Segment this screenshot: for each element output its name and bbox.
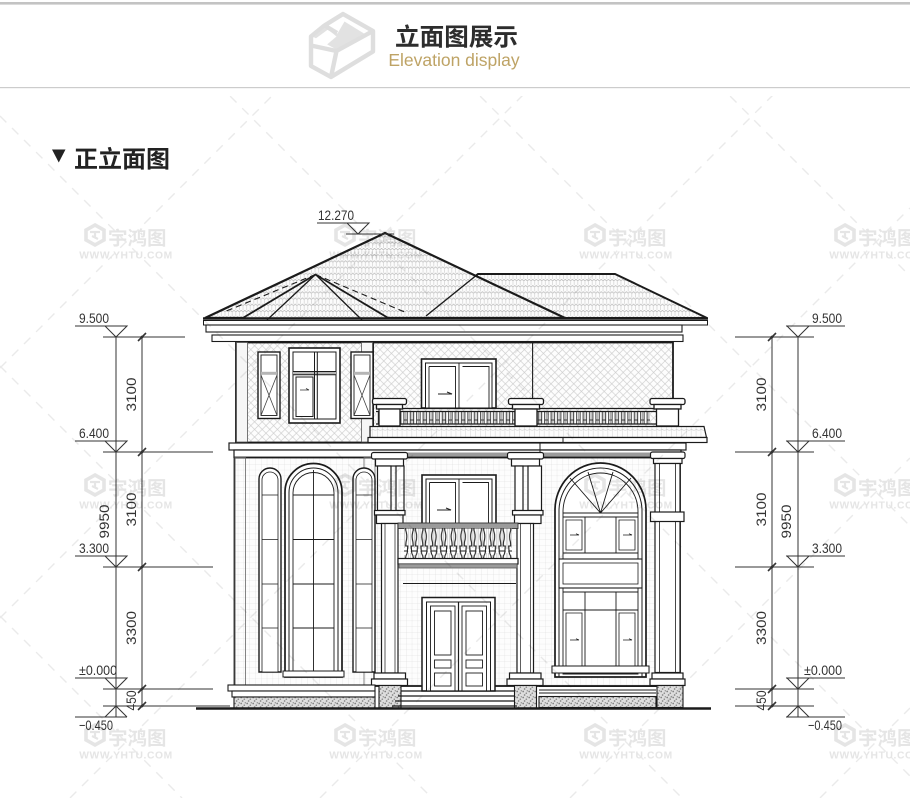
svg-text:WWW.YHTU.COM: WWW.YHTU.COM: [829, 251, 910, 262]
svg-text:WWW.YHTU.COM: WWW.YHTU.COM: [829, 501, 910, 512]
svg-text:3100: 3100: [753, 377, 769, 411]
svg-text:WWW.YHTU.COM: WWW.YHTU.COM: [579, 751, 673, 762]
svg-text:WWW.YHTU.COM: WWW.YHTU.COM: [579, 501, 673, 512]
svg-text:9950: 9950: [778, 504, 794, 538]
svg-text:±0.000: ±0.000: [79, 662, 117, 678]
svg-text:9.500: 9.500: [79, 310, 109, 326]
svg-text:9.500: 9.500: [812, 310, 842, 326]
svg-text:12.270: 12.270: [318, 207, 354, 223]
svg-text:3100: 3100: [123, 377, 139, 411]
svg-text:450: 450: [123, 690, 139, 710]
svg-text:3300: 3300: [123, 611, 139, 645]
svg-text:WWW.YHTU.COM: WWW.YHTU.COM: [579, 251, 673, 262]
svg-text:3.300: 3.300: [812, 540, 842, 556]
svg-text:WWW.YHTU.COM: WWW.YHTU.COM: [329, 501, 423, 512]
svg-text:WWW.YHTU.COM: WWW.YHTU.COM: [329, 251, 423, 262]
svg-text:450: 450: [753, 690, 769, 710]
svg-text:WWW.YHTU.COM: WWW.YHTU.COM: [329, 751, 423, 762]
svg-text:6.400: 6.400: [79, 425, 109, 441]
svg-text:WWW.YHTU.COM: WWW.YHTU.COM: [79, 751, 173, 762]
svg-text:WWW.YHTU.COM: WWW.YHTU.COM: [829, 751, 910, 762]
svg-text:WWW.YHTU.COM: WWW.YHTU.COM: [79, 501, 173, 512]
svg-text:3100: 3100: [753, 492, 769, 526]
svg-text:Elevation display: Elevation display: [388, 50, 520, 70]
svg-text:3.300: 3.300: [79, 540, 109, 556]
svg-text:WWW.YHTU.COM: WWW.YHTU.COM: [79, 251, 173, 262]
